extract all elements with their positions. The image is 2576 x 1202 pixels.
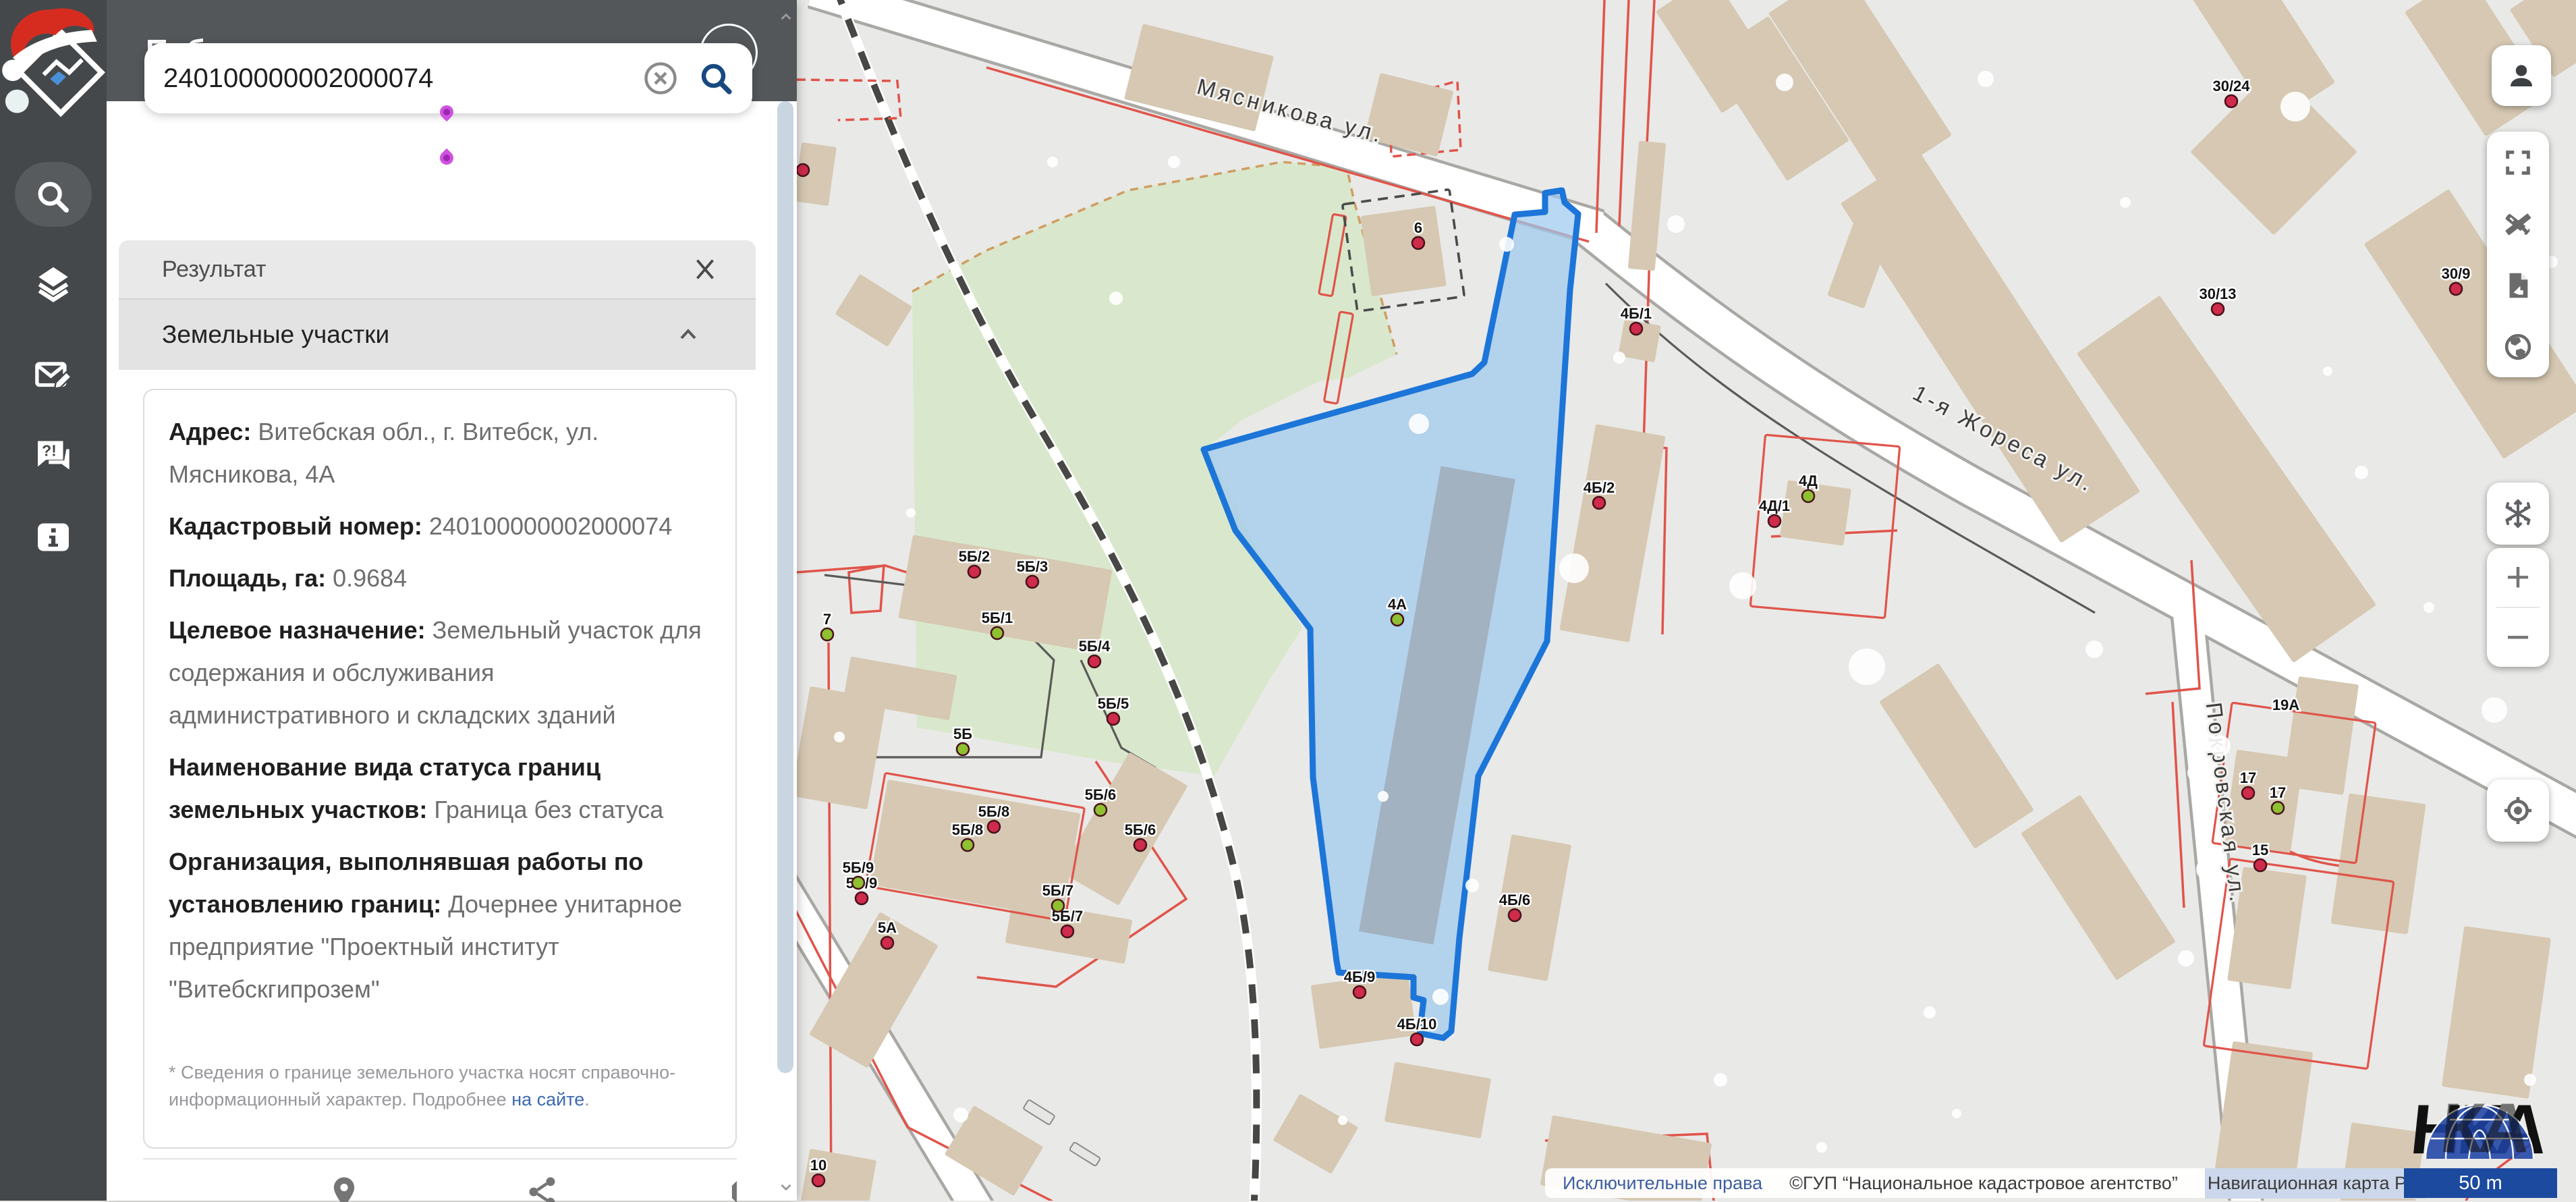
- report-error-icon[interactable]: [725, 1174, 737, 1202]
- nka-logo-icon: НКА КА: [2411, 1083, 2547, 1166]
- section-label: Земельные участки: [162, 321, 389, 349]
- search-input[interactable]: [162, 63, 642, 94]
- svg-text:5Б/5: 5Б/5: [1098, 695, 1129, 712]
- close-result-icon[interactable]: [690, 254, 721, 285]
- svg-text:7: 7: [823, 611, 831, 628]
- chevron-up-icon: [675, 321, 702, 348]
- field-address: Адрес:Витебская обл., г. Витебск, ул. Мя…: [169, 410, 711, 495]
- svg-text:?!: ?!: [42, 441, 57, 459]
- copyright-text: ©ГУП “Национальное кадастровое агентство…: [1789, 1173, 2178, 1194]
- svg-text:5Б/7: 5Б/7: [1042, 882, 1073, 899]
- fullscreen-button[interactable]: [2487, 132, 2549, 193]
- sidebar-item-info[interactable]: [0, 497, 107, 578]
- zoom-controls: + −: [2487, 548, 2549, 667]
- svg-text:5Б/8: 5Б/8: [952, 821, 983, 838]
- map-pin-santa-logo-icon: [0, 0, 107, 117]
- svg-text:19А: 19А: [2272, 696, 2299, 713]
- address-marker[interactable]: 17: [2270, 784, 2286, 814]
- svg-text:5Б/2: 5Б/2: [959, 548, 990, 565]
- svg-text:5Б/6: 5Б/6: [1125, 821, 1156, 838]
- svg-text:5А: 5А: [878, 919, 897, 936]
- scrollbar-thumb[interactable]: [777, 101, 793, 1073]
- scroll-up-icon[interactable]: [777, 8, 795, 26]
- app-logo[interactable]: [0, 0, 107, 118]
- svg-text:5Б/8: 5Б/8: [978, 803, 1009, 820]
- svg-text:4Б/10: 4Б/10: [1397, 1016, 1437, 1033]
- clear-search-icon[interactable]: [642, 59, 679, 97]
- account-button[interactable]: [2492, 45, 2551, 106]
- map-attribution: Исключительные права ©ГУП “Национальное …: [1545, 1168, 2426, 1198]
- map-canvas[interactable]: 64Б/14Б/24Б/64Б/94Б/104Д/1171530/2430/13…: [797, 0, 2576, 1201]
- svg-text:5Б/4: 5Б/4: [1079, 638, 1111, 655]
- svg-text:КА: КА: [2437, 1089, 2533, 1166]
- nka-agency-logo[interactable]: НКА КА: [2411, 1083, 2547, 1166]
- sidebar-rail: ?!: [0, 0, 107, 1201]
- address-marker[interactable]: 17: [2240, 769, 2256, 799]
- svg-text:17: 17: [2270, 784, 2286, 801]
- sidebar-item-search[interactable]: [0, 157, 107, 238]
- svg-text:4Д/1: 4Д/1: [1759, 497, 1790, 514]
- winter-theme-button[interactable]: [2487, 483, 2549, 545]
- footnote: * Сведения о границе земельного участка …: [169, 1059, 711, 1113]
- search-box: [144, 43, 752, 113]
- sidebar-item-layers[interactable]: [0, 243, 107, 324]
- svg-text:5Б/1: 5Б/1: [982, 609, 1013, 626]
- svg-text:5Б/9: 5Б/9: [843, 859, 874, 876]
- locate-me-button[interactable]: [2487, 780, 2549, 842]
- parcel-details-card: Адрес:Витебская обл., г. Витебск, ул. Мя…: [143, 389, 737, 1149]
- svg-text:6: 6: [1414, 219, 1422, 236]
- svg-text:15: 15: [2252, 842, 2268, 858]
- globe-button[interactable]: [2487, 316, 2549, 377]
- result-header-label: Результат: [162, 256, 267, 283]
- field-border-status: Наименование вида статуса границ земельн…: [169, 746, 711, 831]
- measure-tools-icon: [2502, 209, 2533, 240]
- address-marker[interactable]: [797, 164, 809, 176]
- sidebar-item-faq[interactable]: ?!: [0, 414, 107, 495]
- result-action-row: [143, 1158, 737, 1202]
- search-panel: Публичная кадастровая карта Результат: [107, 0, 797, 1201]
- show-on-map-pin-icon[interactable]: [327, 1174, 362, 1202]
- svg-text:4Д: 4Д: [1799, 472, 1818, 489]
- field-purpose: Целевое назначение:Земельный участок для…: [169, 609, 711, 736]
- address-marker[interactable]: 15: [2252, 842, 2268, 871]
- result-header: Результат: [119, 240, 756, 300]
- svg-text:4А: 4А: [1388, 596, 1407, 613]
- svg-text:10: 10: [810, 1157, 827, 1174]
- svg-text:5Б/6: 5Б/6: [1085, 786, 1116, 803]
- zoom-in-button[interactable]: +: [2487, 548, 2549, 607]
- share-icon[interactable]: [525, 1174, 560, 1202]
- export-button[interactable]: [2487, 254, 2549, 316]
- scale-bar: 50 m: [2404, 1168, 2557, 1198]
- map-tools-group: [2487, 132, 2549, 377]
- field-cadastral-number: Кадастровый номер:240100000002000074: [169, 505, 711, 547]
- svg-text:4Б/1: 4Б/1: [1621, 305, 1652, 322]
- search-submit-icon[interactable]: [697, 59, 735, 97]
- person-icon: [2505, 59, 2538, 92]
- locate-icon: [2502, 794, 2534, 827]
- panel-scrollbar[interactable]: [776, 0, 797, 1201]
- search-icon: [34, 177, 73, 217]
- globe-icon: [2502, 331, 2533, 362]
- layers-icon: [34, 264, 73, 303]
- svg-text:4Б/9: 4Б/9: [1344, 968, 1375, 985]
- svg-text:5Б/3: 5Б/3: [1017, 558, 1048, 575]
- address-marker[interactable]: 10: [810, 1157, 827, 1186]
- scroll-down-icon[interactable]: [777, 1178, 795, 1196]
- chat-help-icon: ?!: [34, 435, 73, 474]
- svg-text:30/13: 30/13: [2199, 285, 2236, 302]
- navmap-layer-chip[interactable]: Навигационная карта РБ: [2205, 1168, 2426, 1199]
- field-area: Площадь, га:0.9684: [169, 557, 711, 599]
- fullscreen-icon: [2502, 147, 2533, 178]
- text-selection-handle-end[interactable]: [437, 148, 456, 167]
- file-export-icon: [2502, 270, 2533, 301]
- map-area[interactable]: 64Б/14Б/24Б/64Б/94Б/104Д/1171530/2430/13…: [797, 0, 2576, 1201]
- address-marker[interactable]: 5А: [878, 919, 897, 949]
- measure-tools-button[interactable]: [2487, 193, 2549, 254]
- svg-text:17: 17: [2240, 769, 2256, 786]
- svg-text:4Б/6: 4Б/6: [1499, 892, 1530, 908]
- section-land-parcels[interactable]: Земельные участки: [119, 300, 756, 370]
- exclusive-rights-link[interactable]: Исключительные права: [1563, 1173, 1762, 1194]
- zoom-out-button[interactable]: −: [2487, 608, 2549, 667]
- snowflake-icon: [2502, 497, 2534, 530]
- footnote-site-link[interactable]: на сайте: [511, 1089, 584, 1110]
- app-window: ?! Публичная кадастровая карта: [0, 0, 2576, 1201]
- field-organization: Организация, выполнявшая работы по устан…: [169, 840, 711, 1010]
- svg-text:30/9: 30/9: [2442, 265, 2471, 282]
- svg-text:4Б/2: 4Б/2: [1584, 479, 1615, 496]
- svg-text:30/24: 30/24: [2212, 78, 2250, 94]
- address-marker[interactable]: 4А: [1388, 596, 1407, 626]
- sidebar-item-feedback[interactable]: [0, 335, 107, 416]
- mail-edit-icon: [34, 356, 73, 395]
- info-icon: [34, 518, 73, 557]
- svg-text:5Б: 5Б: [953, 726, 972, 742]
